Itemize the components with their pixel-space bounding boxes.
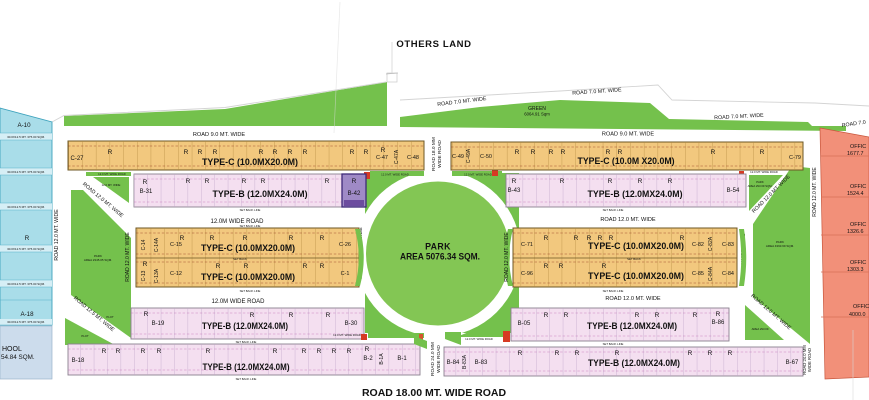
svg-text:C-82: C-82 xyxy=(692,242,704,248)
svg-text:R: R xyxy=(116,348,121,355)
svg-text:R: R xyxy=(213,149,218,156)
svg-text:4000.0: 4000.0 xyxy=(849,312,866,318)
svg-text:R: R xyxy=(531,149,536,156)
svg-text:30.0X12.5 MT. 375.00 SQM.: 30.0X12.5 MT. 375.00 SQM. xyxy=(7,247,45,251)
svg-text:ROAD 9.0 MT. WIDE: ROAD 9.0 MT. WIDE xyxy=(193,132,245,138)
svg-text:R: R xyxy=(157,348,162,355)
svg-text:6064.91 Sqm: 6064.91 Sqm xyxy=(524,112,550,117)
svg-text:R: R xyxy=(575,350,580,357)
svg-text:R: R xyxy=(708,350,713,357)
svg-text:ROAD 9.0 MT. WIDE: ROAD 9.0 MT. WIDE xyxy=(602,132,654,138)
svg-text:A-18: A-18 xyxy=(20,311,34,318)
svg-text:TYPE-C (10.0MX20.0M): TYPE-C (10.0MX20.0M) xyxy=(201,272,295,283)
svg-text:R: R xyxy=(574,235,579,242)
svg-text:R: R xyxy=(143,261,148,268)
svg-text:R: R xyxy=(317,348,322,355)
svg-text:R: R xyxy=(206,348,211,355)
svg-text:R: R xyxy=(347,348,352,355)
svg-text:R: R xyxy=(184,149,189,156)
svg-text:C-48: C-48 xyxy=(407,155,419,161)
svg-text:B-31: B-31 xyxy=(140,189,153,195)
svg-text:R: R xyxy=(560,178,565,185)
svg-text:12.0 MT. WIDE ROAD: 12.0 MT. WIDE ROAD xyxy=(750,170,778,174)
svg-text:R: R xyxy=(141,348,146,355)
svg-text:OFFIC: OFFIC xyxy=(853,304,869,310)
svg-text:R: R xyxy=(273,348,278,355)
svg-text:B-2: B-2 xyxy=(363,356,373,362)
svg-text:R: R xyxy=(544,235,549,242)
svg-text:C-47A: C-47A xyxy=(394,149,400,164)
svg-text:R: R xyxy=(555,350,560,357)
svg-text:C-85: C-85 xyxy=(692,271,704,277)
svg-text:AREA 293.09: AREA 293.09 xyxy=(752,327,769,331)
svg-text:OFFIC: OFFIC xyxy=(850,184,866,190)
svg-text:R: R xyxy=(544,312,549,319)
svg-text:12.0 MT. WIDE: 12.0 MT. WIDE xyxy=(102,183,121,187)
svg-text:OTHERS LAND: OTHERS LAND xyxy=(396,39,471,50)
svg-text:ROAD 18.0 MM: ROAD 18.0 MM xyxy=(431,137,437,171)
svg-text:B-1: B-1 xyxy=(397,356,407,362)
svg-text:SET BACK LINE: SET BACK LINE xyxy=(240,289,261,293)
svg-text:SET BACK LINE: SET BACK LINE xyxy=(236,377,257,381)
svg-text:12.0 MT. WIDE ROAD: 12.0 MT. WIDE ROAD xyxy=(333,333,361,337)
svg-text:R: R xyxy=(635,312,640,319)
svg-text:12.0 MT. WIDE ROAD: 12.0 MT. WIDE ROAD xyxy=(98,172,126,176)
svg-text:R: R xyxy=(564,312,569,319)
svg-text:R: R xyxy=(216,263,221,270)
svg-text:C-49: C-49 xyxy=(452,154,464,160)
svg-text:12.0 MT. WIDE ROAD: 12.0 MT. WIDE ROAD xyxy=(381,173,409,177)
svg-text:OFFIC: OFFIC xyxy=(850,260,866,266)
svg-text:C-14A: C-14A xyxy=(154,237,160,252)
svg-text:TYPE-C (10.0MX20.0M): TYPE-C (10.0MX20.0M) xyxy=(201,243,295,254)
svg-text:R: R xyxy=(303,149,308,156)
svg-text:WIDE ROAD: WIDE ROAD xyxy=(807,348,812,372)
svg-text:R: R xyxy=(515,149,520,156)
svg-text:TYPE-B (12.0MX24.0M): TYPE-B (12.0MX24.0M) xyxy=(202,321,288,332)
svg-text:AREA 293.09 SQM.: AREA 293.09 SQM. xyxy=(748,184,773,188)
svg-text:TYPE-C (10.0M X20.0M): TYPE-C (10.0M X20.0M) xyxy=(578,156,675,167)
svg-text:12.0M WIDE ROAD: 12.0M WIDE ROAD xyxy=(211,299,265,305)
svg-text:AREA 5076.34 SQM.: AREA 5076.34 SQM. xyxy=(400,252,480,262)
svg-text:30.0X12.5 MT. 375.00 SQM.: 30.0X12.5 MT. 375.00 SQM. xyxy=(7,170,45,174)
svg-text:1677.7: 1677.7 xyxy=(847,151,864,157)
svg-text:TYPE-B (12.0MX24.0M): TYPE-B (12.0MX24.0M) xyxy=(203,362,290,373)
svg-text:R: R xyxy=(332,348,337,355)
svg-text:R: R xyxy=(602,263,607,270)
svg-text:A-10: A-10 xyxy=(17,122,31,129)
svg-text:PLOT: PLOT xyxy=(106,315,114,319)
svg-text:R: R xyxy=(143,179,148,186)
svg-text:R: R xyxy=(186,178,191,185)
svg-text:B-86: B-86 xyxy=(712,320,725,326)
svg-text:R: R xyxy=(518,350,523,357)
svg-text:R: R xyxy=(608,178,613,185)
svg-text:R: R xyxy=(273,149,278,156)
svg-text:ROAD 12.0 MT. WIDE: ROAD 12.0 MT. WIDE xyxy=(605,296,661,302)
svg-text:30.0X12.5 MT. 375.00 SQM.: 30.0X12.5 MT. 375.00 SQM. xyxy=(7,135,45,139)
svg-text:R: R xyxy=(326,312,331,319)
svg-text:AREA 4393.69 SQM.: AREA 4393.69 SQM. xyxy=(766,244,794,248)
svg-text:1524.4: 1524.4 xyxy=(847,191,864,197)
svg-text:R: R xyxy=(244,263,249,270)
svg-text:PARK: PARK xyxy=(425,242,451,252)
svg-text:R: R xyxy=(668,178,673,185)
svg-text:SET BACK: SET BACK xyxy=(627,257,641,261)
svg-text:R: R xyxy=(352,178,357,185)
svg-text:B-19: B-19 xyxy=(152,321,165,327)
svg-text:C-71: C-71 xyxy=(521,242,533,248)
svg-text:SET BACK LINE: SET BACK LINE xyxy=(236,340,257,344)
svg-text:R: R xyxy=(609,235,614,242)
svg-text:R: R xyxy=(289,235,294,242)
svg-text:OFFIC: OFFIC xyxy=(850,144,866,150)
svg-text:C-14: C-14 xyxy=(141,239,147,250)
svg-text:C-96: C-96 xyxy=(521,271,533,277)
svg-text:OFFIC: OFFIC xyxy=(850,222,866,228)
svg-text:SET BACK LINE: SET BACK LINE xyxy=(603,208,624,212)
svg-text:R: R xyxy=(289,312,294,319)
svg-text:TYPE-B (12.0MX24.0M): TYPE-B (12.0MX24.0M) xyxy=(588,358,680,369)
svg-text:B-67: B-67 xyxy=(786,360,799,366)
svg-text:R: R xyxy=(320,263,325,270)
svg-text:R: R xyxy=(210,235,215,242)
svg-text:B-1A: B-1A xyxy=(379,353,385,365)
svg-text:R: R xyxy=(364,149,369,156)
svg-text:B-05: B-05 xyxy=(518,321,531,327)
svg-text:R: R xyxy=(350,149,355,156)
svg-text:ROAD 12.0 MT. WIDE: ROAD 12.0 MT. WIDE xyxy=(504,232,510,282)
svg-text:1303.3: 1303.3 xyxy=(847,267,864,273)
svg-text:ROAD 12.0 MT. WIDE: ROAD 12.0 MT. WIDE xyxy=(812,167,818,217)
svg-text:R: R xyxy=(728,350,733,357)
svg-text:R: R xyxy=(320,235,325,242)
svg-text:ROAD 18.00 MT. WIDE ROAD: ROAD 18.00 MT. WIDE ROAD xyxy=(362,387,507,399)
svg-text:C-84: C-84 xyxy=(722,271,734,277)
svg-text:R: R xyxy=(618,149,623,156)
svg-text:ROAD 12.0 MT. WIDE: ROAD 12.0 MT. WIDE xyxy=(600,217,656,223)
svg-text:R: R xyxy=(261,178,266,185)
svg-text:B-42: B-42 xyxy=(348,191,361,197)
svg-text:R: R xyxy=(680,235,685,242)
svg-text:ROAD 12.0 MT. WIDE: ROAD 12.0 MT. WIDE xyxy=(54,209,60,261)
svg-text:R: R xyxy=(259,149,264,156)
svg-text:R: R xyxy=(381,147,386,154)
svg-text:C-84A: C-84A xyxy=(708,266,714,281)
svg-text:R: R xyxy=(205,178,210,185)
svg-text:30.0X12.5 MT. 375.00 SQM.: 30.0X12.5 MT. 375.00 SQM. xyxy=(7,320,45,324)
svg-text:R: R xyxy=(606,149,611,156)
svg-text:R: R xyxy=(144,311,149,318)
svg-text:B-18: B-18 xyxy=(72,358,85,364)
svg-text:12.0 MT. WIDE ROAD: 12.0 MT. WIDE ROAD xyxy=(465,337,493,341)
svg-text:C-47: C-47 xyxy=(376,155,388,161)
svg-text:C-27: C-27 xyxy=(70,156,84,162)
svg-text:R: R xyxy=(711,149,716,156)
svg-text:1326.6: 1326.6 xyxy=(847,229,864,235)
svg-text:R: R xyxy=(325,178,330,185)
svg-text:TYPE-B (12.0MX24.0M): TYPE-B (12.0MX24.0M) xyxy=(213,189,308,200)
svg-text:C-1: C-1 xyxy=(341,271,350,277)
svg-text:C-50: C-50 xyxy=(480,154,492,160)
svg-text:R: R xyxy=(25,235,30,242)
svg-text:R: R xyxy=(180,235,185,242)
svg-text:R: R xyxy=(638,178,643,185)
svg-text:30.0X12.5 MT. 375.00 SQM.: 30.0X12.5 MT. 375.00 SQM. xyxy=(7,282,45,286)
svg-text:R: R xyxy=(102,348,107,355)
svg-text:C-15: C-15 xyxy=(170,242,182,248)
svg-text:R: R xyxy=(243,235,248,242)
svg-text:SET BACK LINE: SET BACK LINE xyxy=(603,289,624,293)
svg-text:R: R xyxy=(693,312,698,319)
svg-text:SET BACK LINE: SET BACK LINE xyxy=(240,224,261,228)
svg-text:12.0 MT. WIDE ROAD: 12.0 MT. WIDE ROAD xyxy=(464,173,492,177)
svg-text:R: R xyxy=(108,149,113,156)
svg-text:R: R xyxy=(716,311,721,318)
svg-text:R: R xyxy=(302,348,307,355)
svg-text:R: R xyxy=(561,149,566,156)
svg-text:R: R xyxy=(250,312,255,319)
svg-text:B-54: B-54 xyxy=(727,188,740,194)
svg-text:B-30: B-30 xyxy=(345,321,358,327)
svg-text:R: R xyxy=(288,149,293,156)
svg-text:TYPE-B (12.0MX24.0M): TYPE-B (12.0MX24.0M) xyxy=(587,321,677,332)
svg-text:R: R xyxy=(544,263,549,270)
svg-text:R: R xyxy=(688,350,693,357)
svg-text:C-79: C-79 xyxy=(789,155,801,161)
svg-text:C-13: C-13 xyxy=(141,270,147,281)
svg-text:R: R xyxy=(549,149,554,156)
svg-text:R: R xyxy=(365,346,370,353)
svg-text:AREA 2345.05 SQM.: AREA 2345.05 SQM. xyxy=(84,258,112,262)
svg-text:ROAD 24.0 MM: ROAD 24.0 MM xyxy=(430,342,436,376)
svg-text:C-12: C-12 xyxy=(170,271,182,277)
svg-text:C-13A: C-13A xyxy=(154,268,160,283)
svg-text:R: R xyxy=(198,149,203,156)
svg-text:WIDE ROAD: WIDE ROAD xyxy=(436,345,442,373)
svg-text:C-82A: C-82A xyxy=(708,236,714,251)
svg-text:PLOT: PLOT xyxy=(81,334,89,338)
svg-text:C-83: C-83 xyxy=(722,242,734,248)
svg-text:R: R xyxy=(615,350,620,357)
svg-text:TYPE-C (10.0MX20.0M): TYPE-C (10.0MX20.0M) xyxy=(588,271,684,282)
svg-text:C-26: C-26 xyxy=(339,242,351,248)
svg-text:B-84: B-84 xyxy=(447,360,460,366)
svg-text:TYPE-C (10.0MX20.0M): TYPE-C (10.0MX20.0M) xyxy=(202,157,298,168)
svg-text:TYPE-C (10.0MX20.0M): TYPE-C (10.0MX20.0M) xyxy=(588,241,684,252)
svg-text:WIDE ROAD: WIDE ROAD xyxy=(437,140,443,168)
svg-text:C-49A: C-49A xyxy=(466,148,472,163)
svg-text:R: R xyxy=(559,263,564,270)
svg-text:B-83: B-83 xyxy=(475,360,488,366)
svg-text:SET BACK LINE: SET BACK LINE xyxy=(240,208,261,212)
svg-text:B-83A: B-83A xyxy=(462,354,468,369)
svg-text:R: R xyxy=(587,235,592,242)
svg-text:ROAD 12.0 MT. WIDE: ROAD 12.0 MT. WIDE xyxy=(125,232,131,282)
svg-text:B-43: B-43 xyxy=(508,188,521,194)
svg-text:R: R xyxy=(303,263,308,270)
svg-text:R: R xyxy=(655,312,660,319)
svg-text:SET BACK LINE: SET BACK LINE xyxy=(603,342,624,346)
svg-text:R: R xyxy=(242,178,247,185)
svg-text:R: R xyxy=(512,178,517,185)
svg-text:HOOL: HOOL xyxy=(2,346,22,353)
svg-text:R: R xyxy=(760,149,765,156)
svg-text:SET BACK: SET BACK xyxy=(233,257,247,261)
svg-text:R: R xyxy=(598,235,603,242)
svg-text:TYPE-B (12.0MX24.0M): TYPE-B (12.0MX24.0M) xyxy=(588,189,683,200)
svg-text:30.0X12.5 MT. 375.00 SQM.: 30.0X12.5 MT. 375.00 SQM. xyxy=(7,205,45,209)
svg-text:54.84 SQM.: 54.84 SQM. xyxy=(1,354,35,361)
